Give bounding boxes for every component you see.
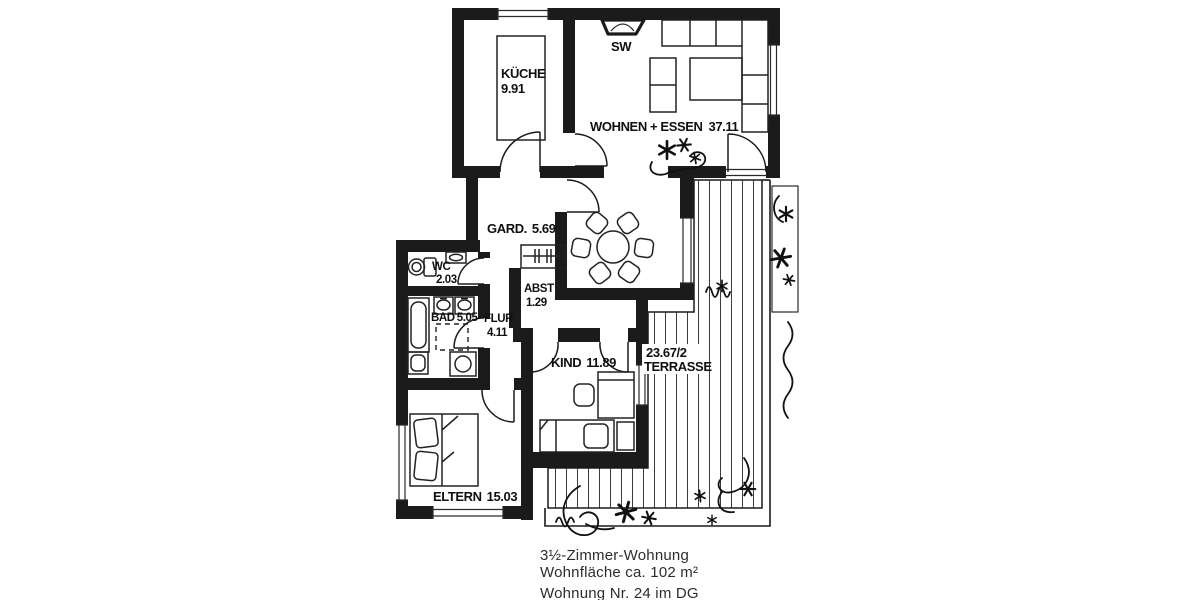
caption-line-3: Wohnung Nr. 24 im DG xyxy=(540,585,699,600)
caption-block: 3½-Zimmer-Wohnung Wohnfläche ca. 102 m² … xyxy=(540,547,699,600)
scanned-floorplan-page: KÜCHE 9.91 SW WOHNEN + ESSEN37.11 GARD.5… xyxy=(0,0,1200,600)
room-label-terrasse-area: 23.67/2 xyxy=(646,345,687,360)
room-label-garderobe: GARD.5.69 xyxy=(487,221,556,236)
room-label-kueche-name: KÜCHE xyxy=(501,66,546,81)
caption-line-1: 3½-Zimmer-Wohnung xyxy=(540,547,689,564)
room-label-wc-name: WC xyxy=(432,261,450,273)
caption-line-2: Wohnfläche ca. 102 m² xyxy=(540,564,698,581)
room-label-terrasse-name: TERRASSE xyxy=(644,359,712,374)
room-label-kueche-area: 9.91 xyxy=(501,81,525,96)
room-label-wc-area: 2.03 xyxy=(436,274,457,286)
room-label-flur-area: 4.11 xyxy=(487,327,508,339)
room-label-abst-area: 1.29 xyxy=(526,297,547,309)
room-label-wohnen: WOHNEN + ESSEN37.11 xyxy=(590,119,739,134)
floorplan-canvas: KÜCHE 9.91 SW WOHNEN + ESSEN37.11 GARD.5… xyxy=(0,0,1200,600)
room-label-abst-name: ABST xyxy=(524,283,554,295)
room-label-eltern: ELTERN15.03 xyxy=(433,489,517,504)
shaft-label: SW xyxy=(611,39,632,54)
room-label-flur-name: FLUR xyxy=(484,313,514,325)
shaft-symbol xyxy=(602,20,644,34)
